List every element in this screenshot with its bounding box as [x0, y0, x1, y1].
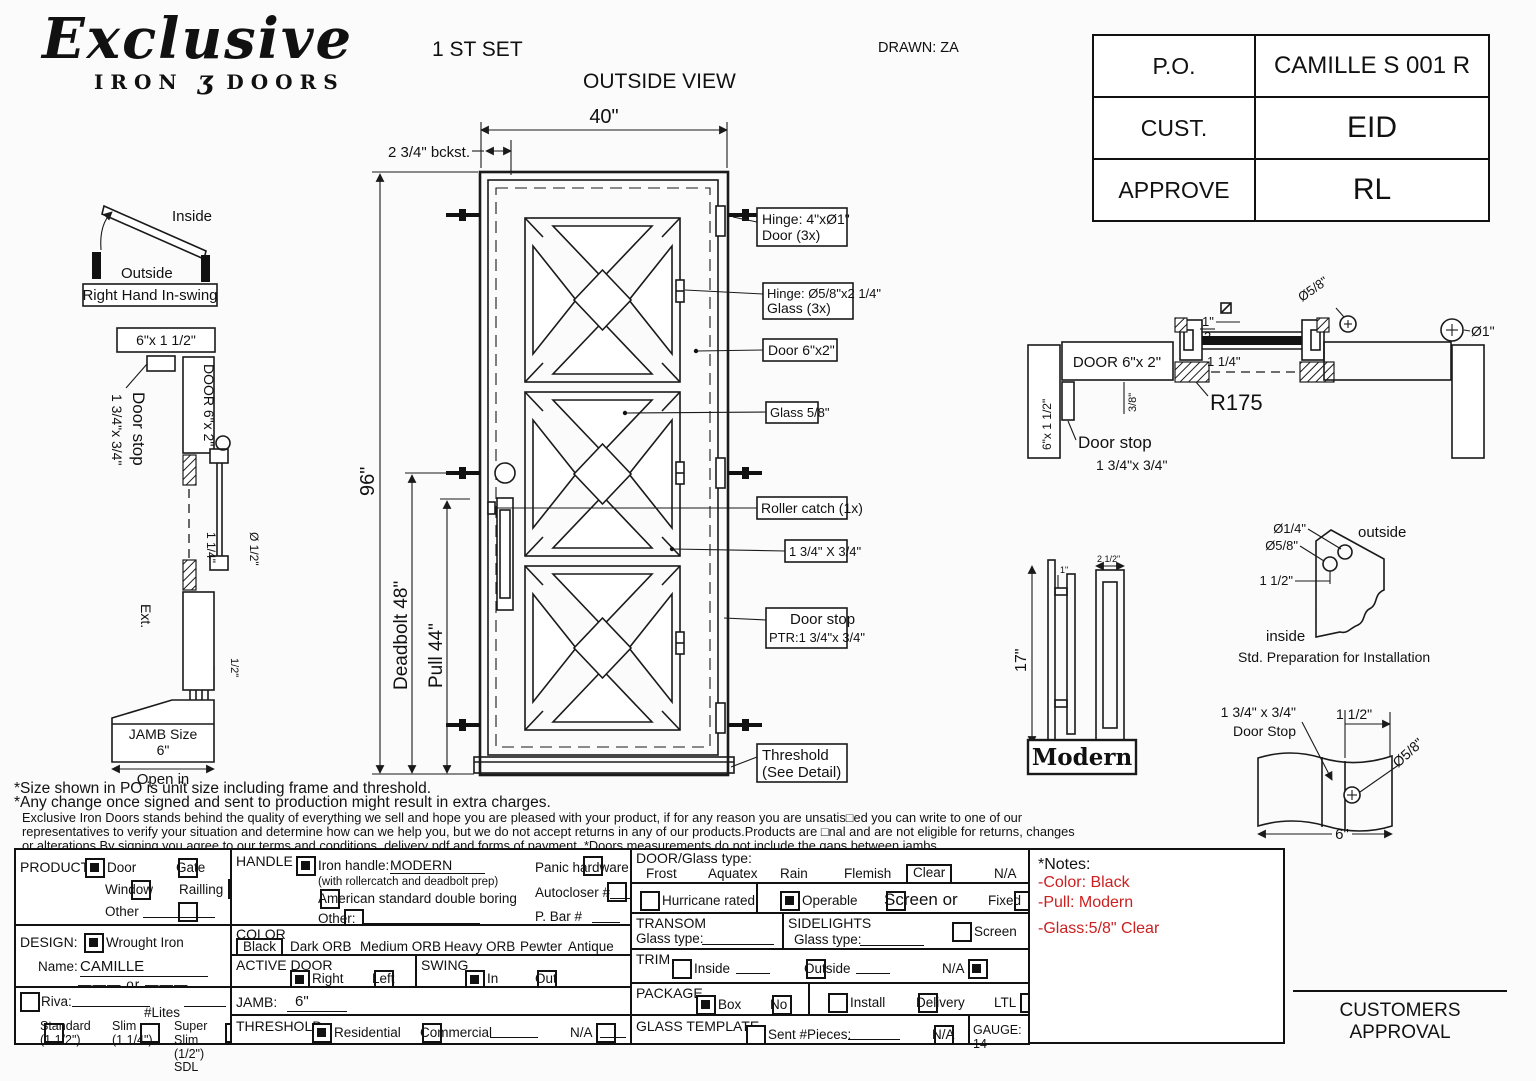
spec-sheet: { "colors": {"accent_red": "#cc2020", "l… [0, 0, 1536, 1081]
stopdetail-dim6: 6" [1335, 826, 1349, 843]
threshold-title: THRESHOLD [236, 1019, 322, 1034]
fixed-label: Fixed [988, 894, 1021, 909]
glass-aquatex-option[interactable]: Aquatex [708, 867, 758, 882]
dim-deadbolt: Deadbolt 48" [391, 581, 412, 690]
signature-line[interactable] [1293, 990, 1507, 992]
sidelights-screen-checkbox[interactable] [952, 922, 972, 942]
trim-outside-label: Outside [804, 962, 851, 977]
note-color: -Color: Black [1038, 874, 1130, 892]
jamb-value[interactable]: 6" [287, 994, 347, 1012]
callout-glass: Glass 5/8" [770, 405, 830, 420]
cust-label: CUST. [1093, 97, 1255, 159]
package-box-label: Box [718, 998, 741, 1013]
handle-dim-212: 2 1/2" [1097, 554, 1120, 564]
operable-label: Operable [802, 894, 858, 909]
install-outside: outside [1358, 524, 1406, 541]
design-wrought-label: Wrought Iron [106, 936, 184, 951]
shipping-section: Install Delivery LTL [808, 982, 1030, 1016]
swing-outside-label: Outside [121, 265, 173, 282]
callout-hinge-door-1: Hinge: 4"xØ1" [762, 211, 850, 227]
jamb-doorstop-size: 1 3/4"x 3/4" [109, 394, 125, 465]
active-right-label: Right [312, 972, 344, 987]
product-other-label: Other [105, 905, 139, 920]
customers-approval-label: CUSTOMERS APPROVAL [1290, 1000, 1510, 1044]
american-boring-label: American standard double boring [318, 892, 517, 907]
callout-door: Door 6"x2" [768, 342, 835, 358]
transom-title: TRANSOM [636, 916, 706, 931]
ext-label: Ext. [138, 604, 154, 628]
jamb-door-size: DOOR 6"x 2" [201, 364, 217, 446]
callout-threshold-2: (See Detail) [762, 764, 841, 781]
package-box-checkbox[interactable] [696, 995, 716, 1015]
glass-frost-option[interactable]: Frost [646, 867, 677, 882]
callout-threshold-1: Threshold [762, 747, 829, 764]
door-glass-title: DOOR/Glass type: [636, 851, 752, 866]
approve-label: APPROVE [1093, 159, 1255, 221]
head-section: 6"x 1 1/2" DOOR 6"x 2" Door stop 1 3/4"x… [1028, 273, 1495, 473]
logo-script-text: Exclusive [42, 6, 353, 72]
note-pull: -Pull: Modern [1038, 894, 1133, 912]
install-caption: Std. Preparation for Installation [1238, 649, 1430, 665]
product-other-field[interactable] [143, 904, 215, 918]
threshold-na-label: N/A [570, 1026, 593, 1041]
swing-inside-label: Inside [172, 208, 212, 225]
jamb-doorstop-label: Door stop [129, 392, 148, 466]
threshold-section: THRESHOLD Residential Commercial N/A [230, 1014, 632, 1045]
swing-title: SWING [421, 958, 468, 973]
swing-out-label: Out [535, 972, 557, 987]
stopdetail-size1: 1 3/4" x 3/4" [1221, 704, 1296, 720]
trim-na-checkbox[interactable] [968, 959, 988, 979]
notes-title: *Notes: [1038, 856, 1090, 874]
panic-label: Panic hardware [535, 861, 629, 876]
swing-in-label: In [487, 972, 498, 987]
notes-section: *Notes: -Color: Black -Pull: Modern -Gla… [1028, 848, 1285, 1044]
dim-pull: Pull 44" [426, 623, 447, 688]
head-phi58: Ø5/8" [1295, 273, 1331, 304]
transom-glass-field[interactable] [702, 931, 774, 945]
handle-detail: 17" 1" 2 1/2" Modern [1013, 554, 1136, 774]
product-door-checkbox[interactable] [85, 858, 105, 878]
set-label: 1 ST SET [432, 38, 523, 62]
install-dim112: 1 1/2" [1259, 573, 1293, 588]
glass-flemish-option[interactable]: Flemish [844, 867, 891, 882]
design-name-label: Name: [38, 960, 78, 975]
active-door-section: ACTIVE DOOR Right Left [230, 954, 417, 988]
iron-handle-value[interactable]: MODERN [390, 858, 485, 874]
info-row-approve: APPROVE RL [1093, 159, 1489, 221]
hurricane-label: Hurricane rated [662, 894, 755, 909]
iron-handle-checkbox[interactable] [296, 856, 316, 876]
jamb-section-left: 6"x 1 1/2" Door stop 1 3/4"x 3/4" DOOR 6… [109, 328, 261, 788]
company-logo: Exclusive IRON ʒ DOORS [42, 6, 353, 96]
sidelights-glass-label: Glass type: [794, 933, 862, 948]
threshold-commercial-field[interactable] [490, 1024, 538, 1038]
callout-roller: Roller catch (1x) [761, 500, 863, 516]
pbar-label: P. Bar # [535, 910, 582, 925]
door-outside-view: 40" 2 3/4" bckst. [357, 106, 881, 782]
sent-pieces-checkbox[interactable] [746, 1025, 766, 1045]
jamb-size-value: 6" [157, 742, 170, 758]
jamb-size-label: JAMB Size [129, 726, 198, 742]
product-door-label: Door [107, 861, 136, 876]
head-doorstop-label: Door stop [1078, 433, 1152, 452]
disclaimer-line-3: Exclusive Iron Doors stands behind the q… [22, 810, 1022, 825]
callout-hinge-door-2: Door (3x) [762, 227, 820, 243]
doorstop-detail: 1 3/4" x 3/4" Door Stop 1 1/2" Ø5/8" 6" [1221, 704, 1427, 843]
design-title: DESIGN: [20, 935, 78, 950]
color-section: COLOR Black Dark ORB Medium ORB Heavy OR… [230, 924, 632, 956]
jamb-dim-half-small: 1/2" [228, 658, 240, 677]
stopdetail-phi58: Ø5/8" [1389, 735, 1426, 771]
sent-pieces-field[interactable] [848, 1026, 900, 1040]
handle-dim-1: 1" [1060, 565, 1068, 575]
install-inside: inside [1266, 628, 1305, 645]
jamb-title: JAMB: [236, 995, 277, 1010]
head-doorstop-size: 1 3/4"x 3/4" [1096, 457, 1167, 473]
active-left-label: Left [372, 972, 395, 987]
sidelights-section: SIDELIGHTS Glass type: Screen [782, 912, 1030, 950]
head-jamb-size: 6"x 1 1/2" [1040, 399, 1054, 450]
logo-doors: DOORS [226, 70, 344, 94]
product-window-label: Window [105, 883, 153, 898]
operable-checkbox[interactable] [780, 891, 800, 911]
ltl-label: LTL [994, 996, 1016, 1011]
door-glass-section: DOOR/Glass type: Frost Aquatex Rain Flem… [630, 848, 1030, 884]
stopdetail-dim112: 1 1/2" [1336, 706, 1372, 722]
po-value: CAMILLE S 001 R [1255, 35, 1489, 97]
trim-outside-field[interactable] [856, 960, 890, 974]
product-railing-label: Railling [179, 883, 223, 898]
autocloser-label: Autocloser # [535, 886, 610, 901]
drawn-label: DRAWN: ZA [878, 40, 959, 56]
jamb-section: JAMB: 6" [230, 986, 632, 1016]
glass-template-section: GLASS TEMPLATE Sent #Pieces: N/A [630, 1014, 970, 1045]
disclaimer-line-4: representatives to verify your situation… [22, 824, 1075, 839]
jamb-dim-half: Ø 1/2" [247, 532, 261, 566]
design-name-value[interactable]: CAMILLE [80, 959, 208, 977]
head-sq-den: 2 [1204, 329, 1211, 344]
operable-section: Operable Screen or Fixed [756, 882, 1030, 914]
jamb-dim-114: 1 1/4" [204, 532, 218, 563]
callout-stop-1: Door stop [790, 611, 855, 628]
threshold-residential-label: Residential [334, 1026, 401, 1041]
hurricane-section: Hurricane rated [630, 882, 758, 914]
color-mediumorb-option[interactable]: Medium ORB [360, 940, 441, 955]
product-title: PRODUCT: [20, 860, 92, 875]
hurricane-checkbox[interactable] [640, 891, 660, 911]
cust-value: EID [1255, 97, 1489, 159]
callout-hinge-glass-1: Hinge: Ø5/8"x2 1/4" [767, 286, 881, 301]
head-phi1: Ø1" [1471, 323, 1495, 339]
style-section: Riva: #Lites Standard(1 1/2") Slim(1 1/4… [14, 986, 232, 1045]
trim-inside-field[interactable] [736, 960, 770, 974]
handle-dim-17: 17" [1013, 649, 1030, 672]
callout-bar: 1 3/4" X 3/4" [789, 544, 861, 559]
info-row-cust: CUST. EID [1093, 97, 1489, 159]
info-table: P.O. CAMILLE S 001 R CUST. EID APPROVE R… [1092, 34, 1490, 222]
logo-subtext: IRON ʒ DOORS [94, 66, 353, 96]
threshold-na-field[interactable] [600, 1024, 626, 1038]
head-sq-num: 1" [1202, 314, 1214, 329]
handle-prep-note: (with rollercatch and deadbolt prep) [318, 876, 498, 889]
package-section: PACKAGE Box No box [630, 982, 810, 1016]
install-phi58: Ø5/8" [1265, 538, 1298, 553]
dim-96: 96" [357, 467, 379, 496]
glass-na-option[interactable]: N/A [994, 867, 1017, 882]
riva-field-2[interactable] [184, 993, 226, 1007]
trim-na-label: N/A [942, 962, 965, 977]
riva-field[interactable] [72, 993, 150, 1007]
handle-title: HANDLE [236, 854, 293, 869]
product-section: PRODUCT: Door Gate Window Railling Other [14, 848, 232, 926]
handle-name-label: Modern [1032, 744, 1133, 771]
view-label: OUTSIDE VIEW [583, 70, 736, 94]
super-slim-label: Super Slim(1/2") SDL [174, 1020, 230, 1075]
approve-value: RL [1255, 159, 1489, 221]
riva-checkbox[interactable] [20, 992, 40, 1012]
trim-inside-checkbox[interactable] [672, 959, 692, 979]
logo-swirl-icon: ʒ [198, 66, 213, 96]
sidelights-screen-label: Screen [974, 925, 1017, 940]
template-na-label: N/A [932, 1028, 955, 1043]
color-darkorb-option[interactable]: Dark ORB [290, 940, 352, 955]
head-dim-114: 1 1/4" [1207, 354, 1241, 369]
info-row-po: P.O. CAMILLE S 001 R [1093, 35, 1489, 97]
iron-handle-label: Iron handle: [318, 859, 389, 874]
po-label: P.O. [1093, 35, 1255, 97]
logo-iron: IRON [94, 70, 184, 94]
handle-other-field[interactable] [362, 910, 480, 924]
riva-label: Riva: [41, 995, 72, 1010]
swing-section: SWING In Out [415, 954, 632, 988]
head-dim-38: 3/8" [1127, 393, 1139, 412]
package-title: PACKAGE [636, 986, 703, 1001]
slim-label: Slim(1 1/4") [112, 1020, 153, 1048]
install-phi14: Ø1/4" [1273, 521, 1306, 536]
glass-template-title: GLASS TEMPLATE [636, 1019, 759, 1034]
jamb-head-size: 6"x 1 1/2" [136, 332, 196, 348]
callout-stop-2: PTR:1 3/4"x 3/4" [769, 630, 865, 645]
threshold-residential-checkbox[interactable] [312, 1023, 332, 1043]
design-wrought-checkbox[interactable] [84, 933, 104, 953]
design-section: DESIGN: Wrought Iron Name: CAMILLE ——— o… [14, 924, 232, 988]
product-gate-label: Gate [176, 861, 205, 876]
install-checkbox[interactable] [828, 993, 848, 1013]
glass-clear-option[interactable]: Clear [906, 864, 952, 884]
callout-hinge-glass-2: Glass (3x) [767, 300, 831, 316]
pbar-field[interactable] [592, 909, 620, 923]
trim-section: TRIM Inside Outside N/A [630, 948, 1030, 984]
swing-type-label: Right Hand In-swing [82, 287, 217, 304]
delivery-label: Delivery [916, 996, 965, 1011]
head-door-size: DOOR 6"x 2" [1073, 354, 1161, 371]
head-r175: R175 [1210, 390, 1263, 415]
autocloser-field[interactable] [610, 885, 630, 899]
dim-40: 40" [589, 106, 618, 128]
note-glass: -Glass:5/8" Clear [1038, 920, 1159, 938]
stopdetail-size2: Door Stop [1233, 723, 1296, 739]
transom-section: TRANSOM Glass type: [630, 912, 784, 950]
trim-title: TRIM [636, 952, 670, 967]
sidelights-title: SIDELIGHTS [788, 916, 871, 931]
sent-pieces-label: Sent #Pieces: [768, 1028, 851, 1043]
standard-label: Standard(1 1/2") [40, 1020, 91, 1048]
threshold-commercial-label: Commercial [420, 1026, 492, 1041]
install-label: Install [850, 996, 885, 1011]
glass-rain-option[interactable]: Rain [780, 867, 808, 882]
gauge-section: GAUGE: 14 [968, 1014, 1030, 1045]
color-heavyorb-option[interactable]: Heavy ORB [444, 940, 515, 955]
transom-glass-label: Glass type: [636, 932, 704, 947]
trim-inside-label: Inside [694, 962, 730, 977]
color-pewter-option[interactable]: Pewter [520, 940, 562, 955]
swing-diagram: Inside Outside Right Hand In-swing [82, 206, 217, 306]
sidelights-glass-field[interactable] [860, 932, 924, 946]
gauge-label: GAUGE: 14 [973, 1024, 1028, 1052]
handle-section: HANDLE Iron handle: MODERN (with rollerc… [230, 848, 632, 926]
screen-or-label: Screen or [884, 891, 958, 910]
dim-bckst: 2 3/4" bckst. [388, 144, 470, 161]
installation-detail: Ø1/4" Ø5/8" 1 1/2" outside inside Std. P… [1238, 521, 1430, 665]
